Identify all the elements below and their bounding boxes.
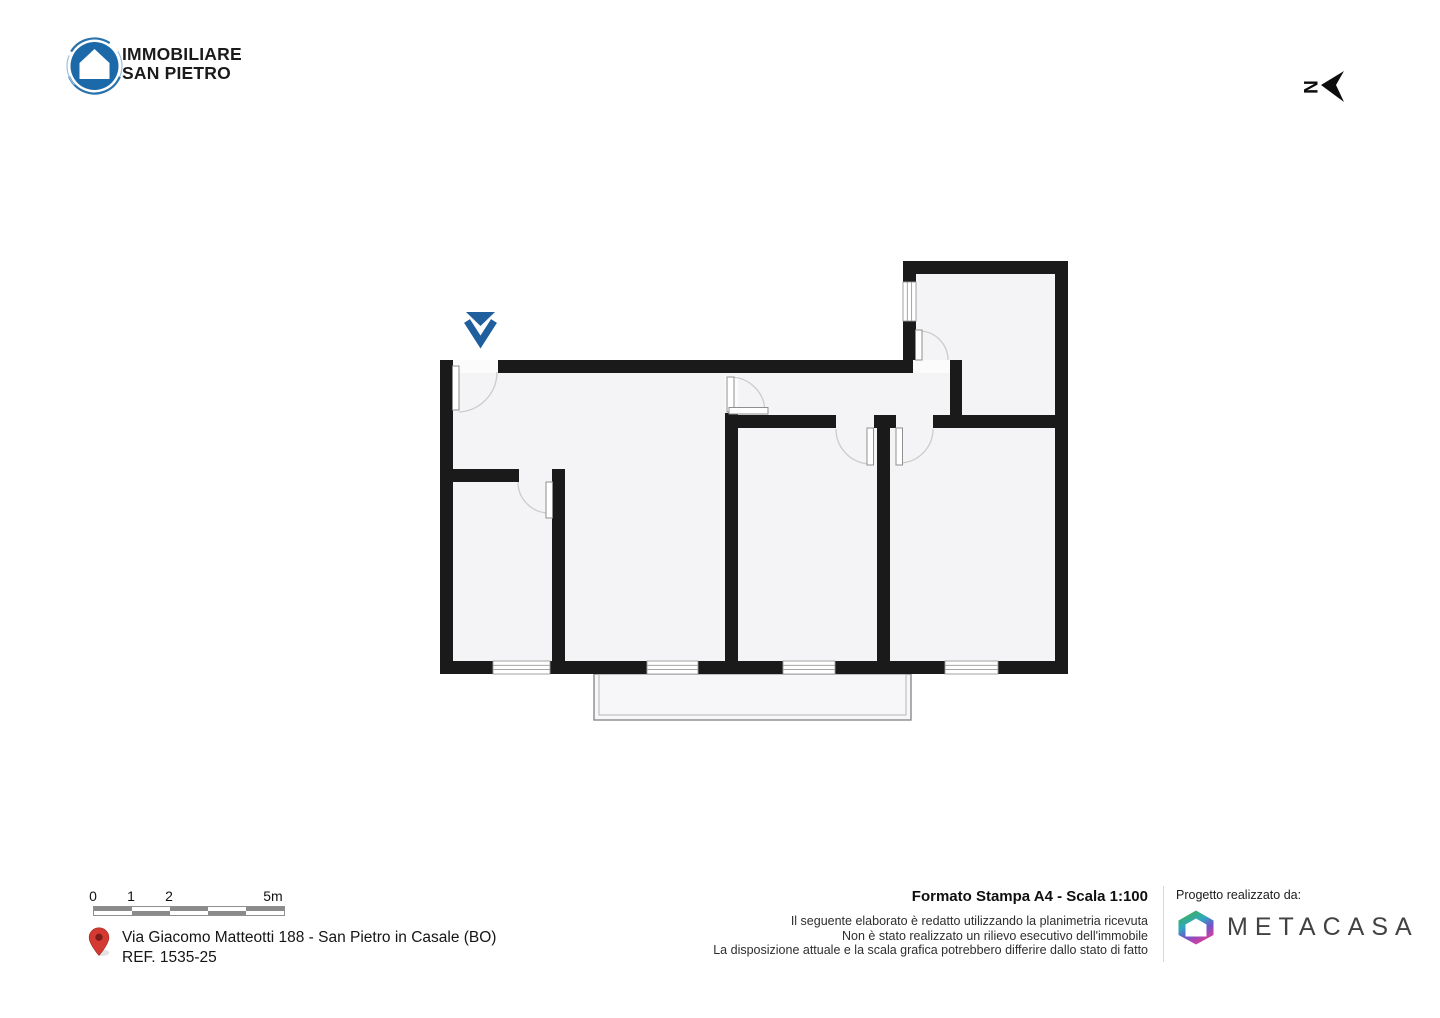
disclaimer-line: La disposizione attuale e la scala grafi… — [713, 943, 1148, 958]
north-arrow-icon: N — [1300, 65, 1350, 110]
metacasa-logo-icon — [1176, 909, 1216, 946]
credits-label: Progetto realizzato da: — [1176, 888, 1419, 902]
floor-fill — [440, 261, 1068, 674]
disclaimer-line: Non è stato realizzato un rilievo esecut… — [713, 929, 1148, 944]
address-line: Via Giacomo Matteotti 188 - San Pietro i… — [122, 928, 496, 948]
credits: Progetto realizzato da: METACASA — [1176, 888, 1419, 946]
entrance-marker-icon — [466, 312, 495, 342]
north-letter: N — [1302, 80, 1323, 94]
agency-logo: IMMOBILIARE SAN PIETRO — [63, 36, 283, 102]
scale-bar-graphic — [93, 906, 285, 916]
window — [945, 661, 998, 674]
footer-divider — [1163, 886, 1164, 962]
window — [783, 661, 835, 674]
scale-label-5m: 5m — [260, 888, 286, 904]
scale-label-0: 0 — [80, 888, 106, 904]
agency-logo-icon — [63, 36, 127, 100]
window — [647, 661, 698, 674]
scale-label-2: 2 — [156, 888, 182, 904]
north-indicator: N — [1300, 65, 1350, 110]
scale-label-1: 1 — [118, 888, 144, 904]
print-info: Formato Stampa A4 - Scala 1:100 Il segue… — [713, 888, 1148, 958]
window — [903, 282, 916, 321]
disclaimer-line: Il seguente elaborato è redatto utilizza… — [713, 914, 1148, 929]
scale-bar: 0 1 2 5m — [92, 888, 302, 918]
floor-plan — [430, 250, 1080, 730]
reference-number: REF. 1535-25 — [122, 948, 496, 968]
agency-name-line1: IMMOBILIARE — [122, 45, 242, 64]
window — [493, 661, 550, 674]
agency-name-line2: SAN PIETRO — [122, 64, 242, 83]
print-format-title: Formato Stampa A4 - Scala 1:100 — [713, 888, 1148, 905]
map-pin-icon — [88, 927, 110, 957]
metacasa-brand-name: METACASA — [1227, 913, 1419, 942]
floor-plan-drawing — [430, 250, 1080, 730]
balcony — [594, 674, 911, 720]
